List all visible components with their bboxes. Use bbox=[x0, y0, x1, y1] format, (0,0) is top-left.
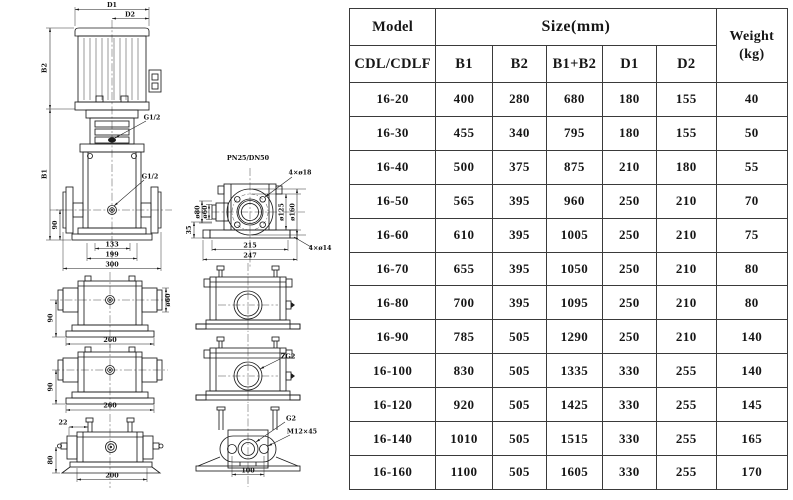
cell-d1: 330 bbox=[602, 455, 656, 489]
col-b1-header: B1 bbox=[436, 46, 493, 83]
port-g12-mid-label: G1/2 bbox=[142, 173, 159, 181]
cell-b1b2: 1515 bbox=[547, 422, 603, 456]
cell-b1b2: 1095 bbox=[547, 286, 603, 320]
cell-d2: 255 bbox=[657, 455, 717, 489]
cell-b1: 655 bbox=[436, 252, 493, 286]
cell-b2: 395 bbox=[492, 286, 546, 320]
cell-d1: 250 bbox=[602, 252, 656, 286]
pump-front-view: D1 D2 B2 B1 G1/2 G1/2 90 133 199 300 bbox=[41, 1, 173, 271]
inlet-front-view-1 bbox=[196, 263, 300, 332]
cell-b1: 920 bbox=[436, 388, 493, 422]
cell-weight: 50 bbox=[716, 116, 787, 150]
dia-60-side-label: ø60 bbox=[164, 293, 172, 307]
cell-d2: 255 bbox=[657, 388, 717, 422]
cell-b1: 455 bbox=[436, 116, 493, 150]
cell-d1: 330 bbox=[602, 388, 656, 422]
dim-247-label: 247 bbox=[243, 252, 256, 260]
cell-model: 16-40 bbox=[350, 150, 436, 184]
col-model-header: Model bbox=[350, 9, 436, 46]
dim-b2-label: B2 bbox=[41, 63, 49, 73]
cell-b2: 395 bbox=[492, 184, 546, 218]
col-d1-header: D1 bbox=[602, 46, 656, 83]
cell-b1: 1010 bbox=[436, 422, 493, 456]
cell-b2: 505 bbox=[492, 354, 546, 388]
cell-model: 16-100 bbox=[350, 354, 436, 388]
col-b1b2-header: B1+B2 bbox=[547, 46, 603, 83]
cell-b1: 400 bbox=[436, 83, 493, 117]
cell-b2: 505 bbox=[492, 422, 546, 456]
inlet-front-view-2: ZG2 bbox=[196, 334, 300, 403]
col-model-subheader: CDL/CDLF bbox=[350, 46, 436, 83]
cell-d1: 330 bbox=[602, 422, 656, 456]
dim-215-label: 215 bbox=[243, 242, 256, 250]
dia-125-label: ø125 bbox=[278, 203, 286, 221]
head-port bbox=[108, 138, 116, 143]
cell-b1b2: 795 bbox=[547, 116, 603, 150]
cell-weight: 40 bbox=[716, 83, 787, 117]
cell-b1b2: 1605 bbox=[547, 455, 603, 489]
bolt-4x14-label: 4×ø14 bbox=[309, 244, 333, 252]
dim-d1-label: D1 bbox=[107, 1, 117, 9]
cell-b2: 395 bbox=[492, 252, 546, 286]
table-row: 16-60 610 395 1005 250 210 75 bbox=[350, 218, 788, 252]
cell-b1: 565 bbox=[436, 184, 493, 218]
cell-d2: 155 bbox=[657, 116, 717, 150]
cell-d1: 250 bbox=[602, 218, 656, 252]
cell-model: 16-80 bbox=[350, 286, 436, 320]
dim-90-s2-label: 90 bbox=[47, 382, 55, 391]
cell-b2: 375 bbox=[492, 150, 546, 184]
port-g2-label: G2 bbox=[286, 415, 296, 423]
cell-weight: 165 bbox=[716, 422, 787, 456]
table-row: 16-80 700 395 1095 250 210 80 bbox=[350, 286, 788, 320]
table-row: 16-140 1010 505 1515 330 255 165 bbox=[350, 422, 788, 456]
cell-b1b2: 875 bbox=[547, 150, 603, 184]
cell-model: 16-120 bbox=[350, 388, 436, 422]
pump-side-view-1: 90 260 ø60 bbox=[47, 272, 173, 348]
cell-b1: 1100 bbox=[436, 455, 493, 489]
dim-300-label: 300 bbox=[105, 261, 119, 269]
cell-b1: 500 bbox=[436, 150, 493, 184]
dim-90-s1-label: 90 bbox=[47, 313, 55, 322]
cell-d1: 330 bbox=[602, 354, 656, 388]
port-zg2-label: ZG2 bbox=[281, 353, 296, 361]
cell-b2: 340 bbox=[492, 116, 546, 150]
cell-b1: 700 bbox=[436, 286, 493, 320]
cell-b1b2: 960 bbox=[547, 184, 603, 218]
dia-160-label: ø160 bbox=[289, 203, 297, 221]
cell-b2: 505 bbox=[492, 455, 546, 489]
table-row: 16-90 785 505 1290 250 210 140 bbox=[350, 320, 788, 354]
cell-model: 16-50 bbox=[350, 184, 436, 218]
cell-weight: 80 bbox=[716, 252, 787, 286]
cell-b1b2: 680 bbox=[547, 83, 603, 117]
cell-weight: 75 bbox=[716, 218, 787, 252]
table-row: 16-40 500 375 875 210 180 55 bbox=[350, 150, 788, 184]
table-row: 16-100 830 505 1335 330 255 140 bbox=[350, 354, 788, 388]
cell-d2: 210 bbox=[657, 218, 717, 252]
col-d2-header: D2 bbox=[657, 46, 717, 83]
dim-260-s1-label: 260 bbox=[103, 336, 117, 344]
dimension-table: Model Size(mm) Weight (kg) CDL/CDLF B1 B… bbox=[349, 8, 788, 490]
cell-model: 16-30 bbox=[350, 116, 436, 150]
table-row: 16-160 1100 505 1605 330 255 170 bbox=[350, 455, 788, 489]
technical-drawing: D1 D2 B2 B1 G1/2 G1/2 90 133 199 300 PN2… bbox=[0, 0, 346, 500]
cell-weight: 55 bbox=[716, 150, 787, 184]
cell-d1: 250 bbox=[602, 320, 656, 354]
cell-b2: 395 bbox=[492, 218, 546, 252]
cell-b2: 505 bbox=[492, 320, 546, 354]
cell-b1b2: 1290 bbox=[547, 320, 603, 354]
pump-datasheet: D1 D2 B2 B1 G1/2 G1/2 90 133 199 300 PN2… bbox=[0, 0, 793, 500]
cell-b1b2: 1425 bbox=[547, 388, 603, 422]
cell-b2: 280 bbox=[492, 83, 546, 117]
cell-b1: 830 bbox=[436, 354, 493, 388]
cell-d1: 180 bbox=[602, 83, 656, 117]
dia-60-label: ø60 bbox=[201, 205, 209, 219]
cell-d2: 255 bbox=[657, 354, 717, 388]
cell-b1b2: 1335 bbox=[547, 354, 603, 388]
pump-side-view-2: 90 260 bbox=[47, 344, 169, 413]
cell-model: 16-70 bbox=[350, 252, 436, 286]
cell-weight: 145 bbox=[716, 388, 787, 422]
dim-80-label: 80 bbox=[47, 455, 55, 464]
flange-detail-view: PN25/DN50 bbox=[185, 154, 332, 268]
outlet-flange-view: G2 M12×45 100 bbox=[196, 404, 317, 487]
col-b2-header: B2 bbox=[492, 46, 546, 83]
dim-b1-label: B1 bbox=[41, 169, 49, 179]
cell-b1: 610 bbox=[436, 218, 493, 252]
cell-b1: 785 bbox=[436, 320, 493, 354]
pump-drawing-svg: D1 D2 B2 B1 G1/2 G1/2 90 133 199 300 PN2… bbox=[0, 0, 346, 500]
cell-d2: 155 bbox=[657, 83, 717, 117]
cell-b1b2: 1005 bbox=[547, 218, 603, 252]
table-row: 16-70 655 395 1050 250 210 80 bbox=[350, 252, 788, 286]
flange-title-label: PN25/DN50 bbox=[227, 154, 270, 162]
cell-d1: 210 bbox=[602, 150, 656, 184]
cell-weight: 70 bbox=[716, 184, 787, 218]
cell-d2: 180 bbox=[657, 150, 717, 184]
cell-weight: 140 bbox=[716, 320, 787, 354]
pump-bottom-side-view: 22 80 200 bbox=[47, 414, 164, 488]
weight-label-line1: Weight bbox=[729, 29, 774, 44]
dim-22-label: 22 bbox=[59, 419, 68, 427]
col-weight-header: Weight (kg) bbox=[716, 9, 787, 83]
bolt-4x18-label: 4×ø18 bbox=[289, 169, 313, 177]
cell-d1: 180 bbox=[602, 116, 656, 150]
weight-label-line2: (kg) bbox=[739, 47, 764, 62]
dim-200-label: 200 bbox=[105, 472, 119, 480]
dim-100-label: 100 bbox=[241, 467, 255, 475]
dim-199-label: 199 bbox=[105, 251, 119, 259]
cell-weight: 80 bbox=[716, 286, 787, 320]
dim-35-label: 35 bbox=[185, 226, 193, 235]
cell-d2: 210 bbox=[657, 320, 717, 354]
table-body: 16-20 400 280 680 180 155 40 16-30 455 3… bbox=[350, 83, 788, 490]
cell-d1: 250 bbox=[602, 286, 656, 320]
cell-weight: 170 bbox=[716, 455, 787, 489]
port-g12-top-label: G1/2 bbox=[144, 114, 161, 122]
table-row: 16-120 920 505 1425 330 255 145 bbox=[350, 388, 788, 422]
cell-d1: 250 bbox=[602, 184, 656, 218]
dim-133-label: 133 bbox=[105, 241, 119, 249]
cell-weight: 140 bbox=[716, 354, 787, 388]
cell-d2: 210 bbox=[657, 286, 717, 320]
cell-model: 16-140 bbox=[350, 422, 436, 456]
cell-d2: 210 bbox=[657, 184, 717, 218]
bolt-m12x45-label: M12×45 bbox=[287, 428, 317, 436]
cell-model: 16-60 bbox=[350, 218, 436, 252]
cell-model: 16-90 bbox=[350, 320, 436, 354]
table-header: Model Size(mm) Weight (kg) CDL/CDLF B1 B… bbox=[350, 9, 788, 83]
dim-260-s2-label: 260 bbox=[103, 402, 117, 410]
table-pane: Model Size(mm) Weight (kg) CDL/CDLF B1 B… bbox=[346, 0, 793, 500]
table-row: 16-50 565 395 960 250 210 70 bbox=[350, 184, 788, 218]
cell-d2: 210 bbox=[657, 252, 717, 286]
cell-b1b2: 1050 bbox=[547, 252, 603, 286]
cell-d2: 255 bbox=[657, 422, 717, 456]
cell-model: 16-160 bbox=[350, 455, 436, 489]
table-row: 16-30 455 340 795 180 155 50 bbox=[350, 116, 788, 150]
col-size-group-header: Size(mm) bbox=[436, 9, 716, 46]
dim-d2-label: D2 bbox=[125, 11, 135, 19]
cell-model: 16-20 bbox=[350, 83, 436, 117]
table-row: 16-20 400 280 680 180 155 40 bbox=[350, 83, 788, 117]
cell-b2: 505 bbox=[492, 388, 546, 422]
dim-90-label: 90 bbox=[51, 220, 59, 229]
